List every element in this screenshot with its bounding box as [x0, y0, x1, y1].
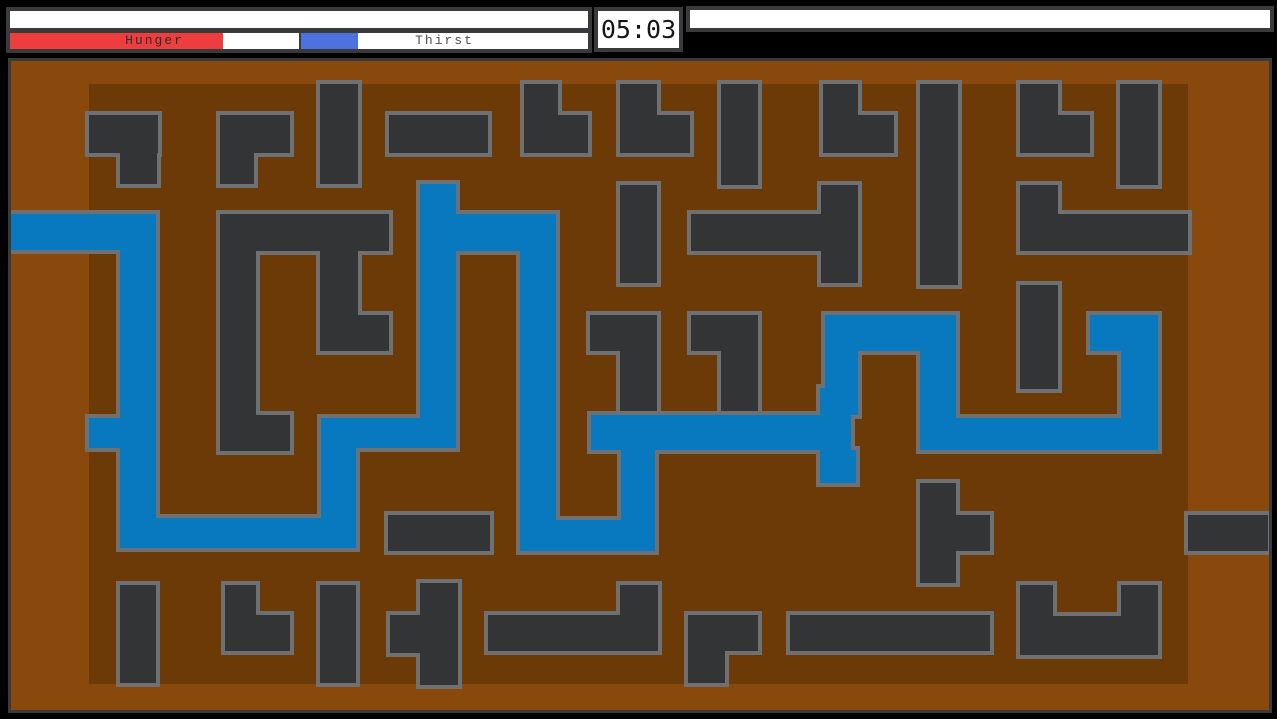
maze-wall: [717, 80, 762, 189]
maze-wall: [1184, 511, 1269, 555]
hunger-label: Hunger: [10, 33, 299, 49]
timer-value: 05:03: [601, 15, 676, 44]
maze-wall: [385, 111, 492, 157]
maze-wall: [384, 511, 494, 555]
status-panel: Hunger Thirst: [6, 7, 592, 53]
maze-wall: [786, 611, 994, 655]
maze-canvas[interactable]: [11, 61, 1269, 710]
maze-wall: [316, 581, 360, 687]
maze-wall: [116, 581, 160, 687]
top-status-bar: [10, 11, 588, 28]
maze-wall: [1016, 281, 1062, 393]
hunger-meter: Hunger: [10, 33, 299, 49]
meters-row: Hunger Thirst: [10, 33, 588, 49]
message-bar-text: [690, 10, 1270, 28]
timer-box: 05:03: [594, 7, 683, 52]
thirst-meter: Thirst: [301, 33, 588, 49]
maze-wall: [616, 181, 661, 287]
maze-wall: [916, 80, 962, 289]
maze-wall: [316, 80, 362, 188]
message-bar: [686, 6, 1274, 32]
timer-display: 05:03: [598, 11, 679, 48]
game-area[interactable]: [8, 58, 1272, 713]
thirst-label: Thirst: [301, 33, 588, 49]
maze-wall: [1116, 80, 1162, 189]
